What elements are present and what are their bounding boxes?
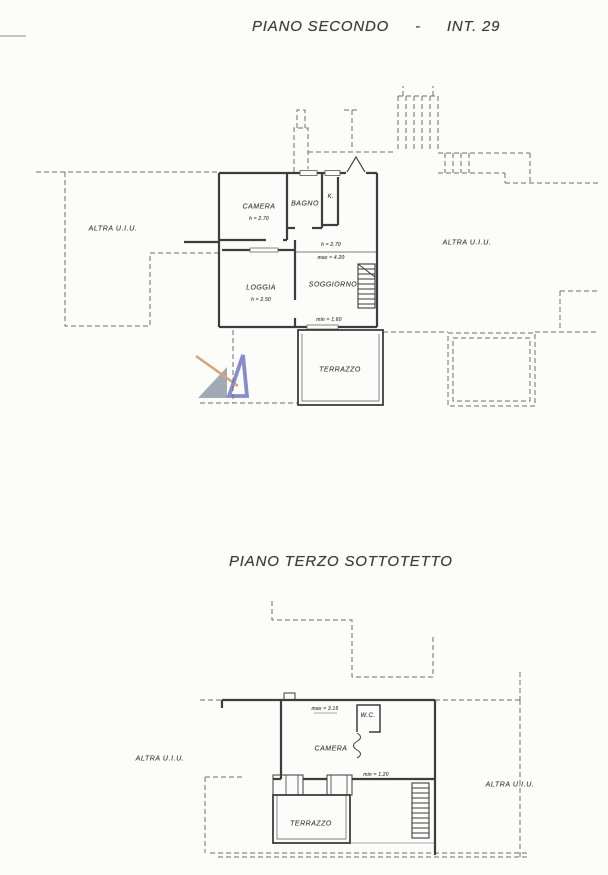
camera-height-annotation: h = 2.70 xyxy=(249,216,269,222)
min-height-annotation: min = 1.60 xyxy=(316,317,342,323)
plan1-walls xyxy=(184,173,377,327)
room-label-soggiorno: SOGGIORNO xyxy=(309,282,357,289)
room-label-camera: CAMERA xyxy=(243,204,276,211)
room-label-wc: W.C. xyxy=(360,713,375,719)
plan1-title: PIANO SECONDO - INT. 29 xyxy=(252,18,500,35)
plan1-stairs-symbol xyxy=(358,264,375,308)
attic-min-annotation: min = 1.20 xyxy=(363,772,389,778)
plan2-dashed-outlines xyxy=(200,601,528,857)
floorplan-drawing xyxy=(0,0,608,875)
attic-room-label-camera: CAMERA xyxy=(315,746,348,753)
room-label-k: K. xyxy=(328,194,335,200)
plan1-title-interior: INT. 29 xyxy=(447,18,500,35)
height-annotation: h = 2.70 xyxy=(321,242,341,248)
attic-max-annotation: max = 3.15 xyxy=(312,706,339,712)
section-break-symbol xyxy=(354,733,361,758)
altra-uiu-left-label: ALTRA U.I.U. xyxy=(89,226,138,233)
max-height-annotation: max = 4.20 xyxy=(318,255,345,261)
plan2-title-text: PIANO TERZO SOTTOTETTO xyxy=(229,553,453,570)
room-label-loggia: LOGGIA xyxy=(246,285,276,292)
plan1-dashed-outlines xyxy=(36,86,598,406)
plan2-terrace-walls xyxy=(273,795,350,843)
plan1-windows xyxy=(250,169,366,330)
attic-room-label-terrazzo: TERRAZZO xyxy=(290,821,332,828)
altra-uiu-right-label: ALTRA U.I.U. xyxy=(443,240,492,247)
room-label-terrazzo: TERRAZZO xyxy=(319,367,361,374)
agency-logo-watermark xyxy=(196,355,247,398)
attic-altra-uiu-left-label: ALTRA U.I.U. xyxy=(136,756,185,763)
plan2-stairs-symbol xyxy=(412,783,429,838)
plan1-title-name: PIANO SECONDO xyxy=(252,18,389,35)
plan2-walls xyxy=(222,700,435,855)
floorplan-page: PIANO SECONDO - INT. 29 CAMERA h = 2.70 … xyxy=(0,0,608,875)
door-swing-symbol xyxy=(347,157,365,172)
plan1-title-separator: - xyxy=(415,18,421,35)
room-label-bagno: BAGNO xyxy=(291,201,319,208)
attic-altra-uiu-right-label: ALTRA U.I.U. xyxy=(486,782,535,789)
loggia-height-annotation: h = 2.50 xyxy=(251,297,271,303)
plan2-title: PIANO TERZO SOTTOTETTO xyxy=(229,553,453,570)
